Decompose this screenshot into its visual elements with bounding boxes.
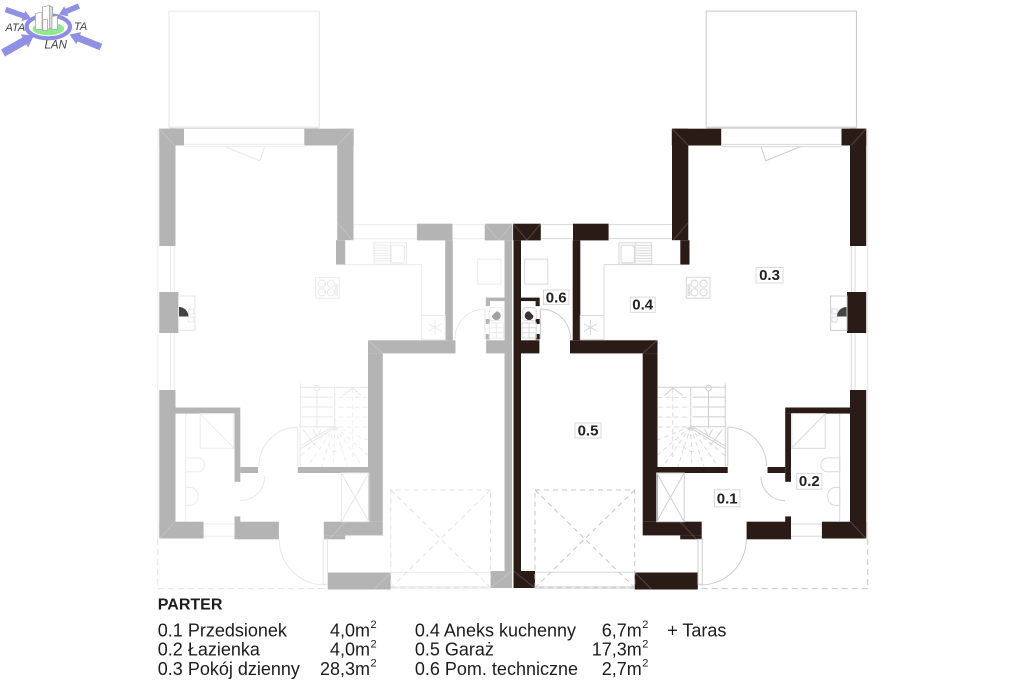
svg-text:2: 2 [371, 658, 377, 670]
svg-text:4,0m: 4,0m [330, 621, 370, 641]
svg-text:0.4 Aneks kuchenny: 0.4 Aneks kuchenny [415, 621, 576, 641]
svg-text:ATA: ATA [5, 22, 26, 34]
svg-text:2: 2 [642, 619, 648, 631]
svg-text:2: 2 [371, 638, 377, 650]
svg-text:0.5 Garaż: 0.5 Garaż [415, 640, 494, 660]
svg-text:0.2: 0.2 [799, 473, 820, 490]
svg-text:0.4: 0.4 [632, 297, 654, 314]
svg-text:17,3m: 17,3m [592, 640, 642, 660]
svg-text:0.3 Pokój dzienny: 0.3 Pokój dzienny [158, 659, 300, 679]
svg-text:0.3: 0.3 [759, 267, 780, 284]
svg-text:0.6 Pom. techniczne: 0.6 Pom. techniczne [415, 659, 578, 679]
svg-text:0.2 Łazienka: 0.2 Łazienka [158, 640, 261, 660]
svg-text:2: 2 [642, 638, 648, 650]
svg-text:PARTER: PARTER [158, 596, 223, 613]
svg-text:0.5: 0.5 [578, 422, 599, 439]
svg-text:0.6: 0.6 [546, 289, 567, 306]
svg-text:LAN: LAN [45, 39, 68, 51]
svg-text:TA: TA [74, 21, 87, 33]
svg-text:0.1 Przedsionek: 0.1 Przedsionek [158, 621, 288, 641]
svg-text:2: 2 [642, 658, 648, 670]
svg-text:6,7m: 6,7m [602, 621, 642, 641]
svg-text:2,7m: 2,7m [602, 659, 642, 679]
svg-text:0.1: 0.1 [717, 491, 738, 508]
svg-text:+ Taras: + Taras [667, 621, 726, 641]
svg-text:4,0m: 4,0m [330, 640, 370, 660]
svg-text:2: 2 [371, 619, 377, 631]
svg-text:28,3m: 28,3m [320, 659, 370, 679]
